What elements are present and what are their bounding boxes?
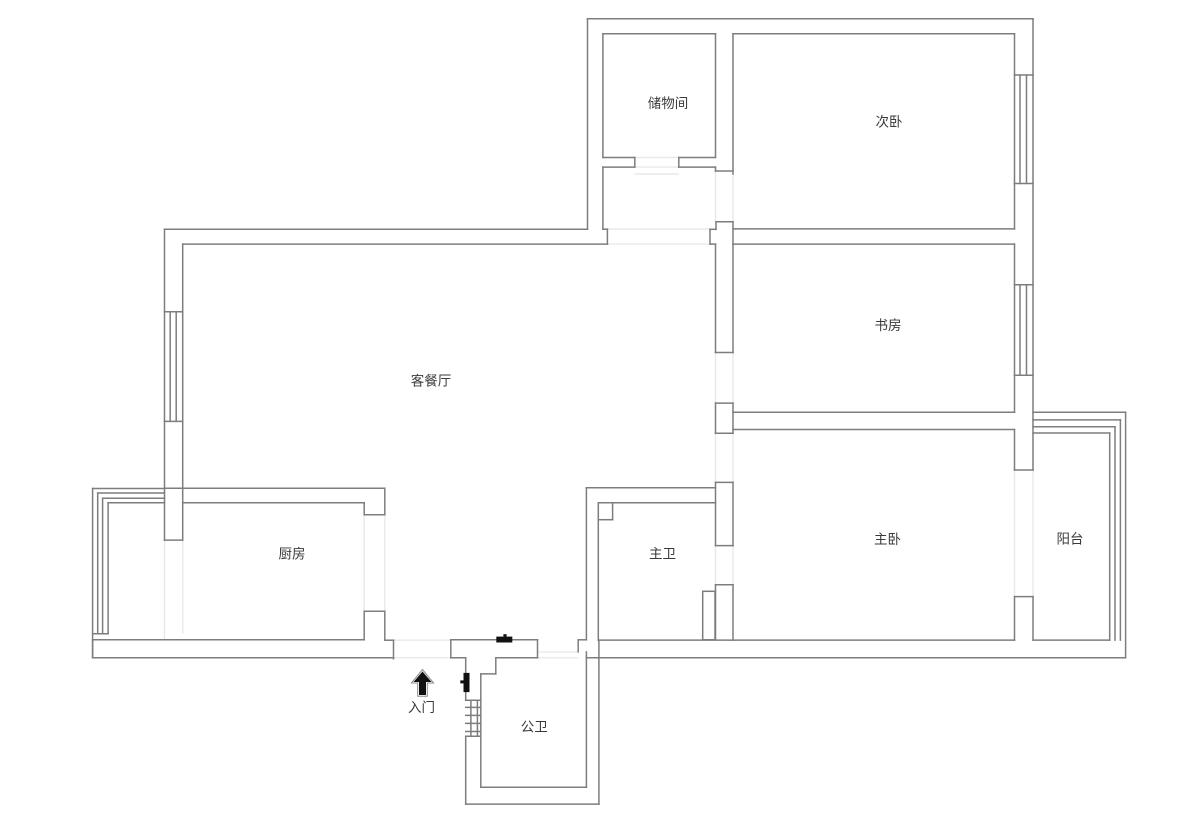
svg-text:公卫: 公卫 bbox=[521, 720, 548, 735]
svg-text:阳台: 阳台 bbox=[1057, 532, 1084, 547]
svg-text:次卧: 次卧 bbox=[876, 115, 903, 130]
svg-text:厨房: 厨房 bbox=[279, 547, 306, 562]
svg-text:主卫: 主卫 bbox=[649, 547, 676, 562]
svg-text:储物间: 储物间 bbox=[648, 96, 689, 111]
svg-text:书房: 书房 bbox=[875, 318, 902, 333]
svg-text:入门: 入门 bbox=[408, 700, 435, 715]
svg-text:主卧: 主卧 bbox=[874, 532, 901, 547]
svg-text:客餐厅: 客餐厅 bbox=[411, 373, 452, 389]
